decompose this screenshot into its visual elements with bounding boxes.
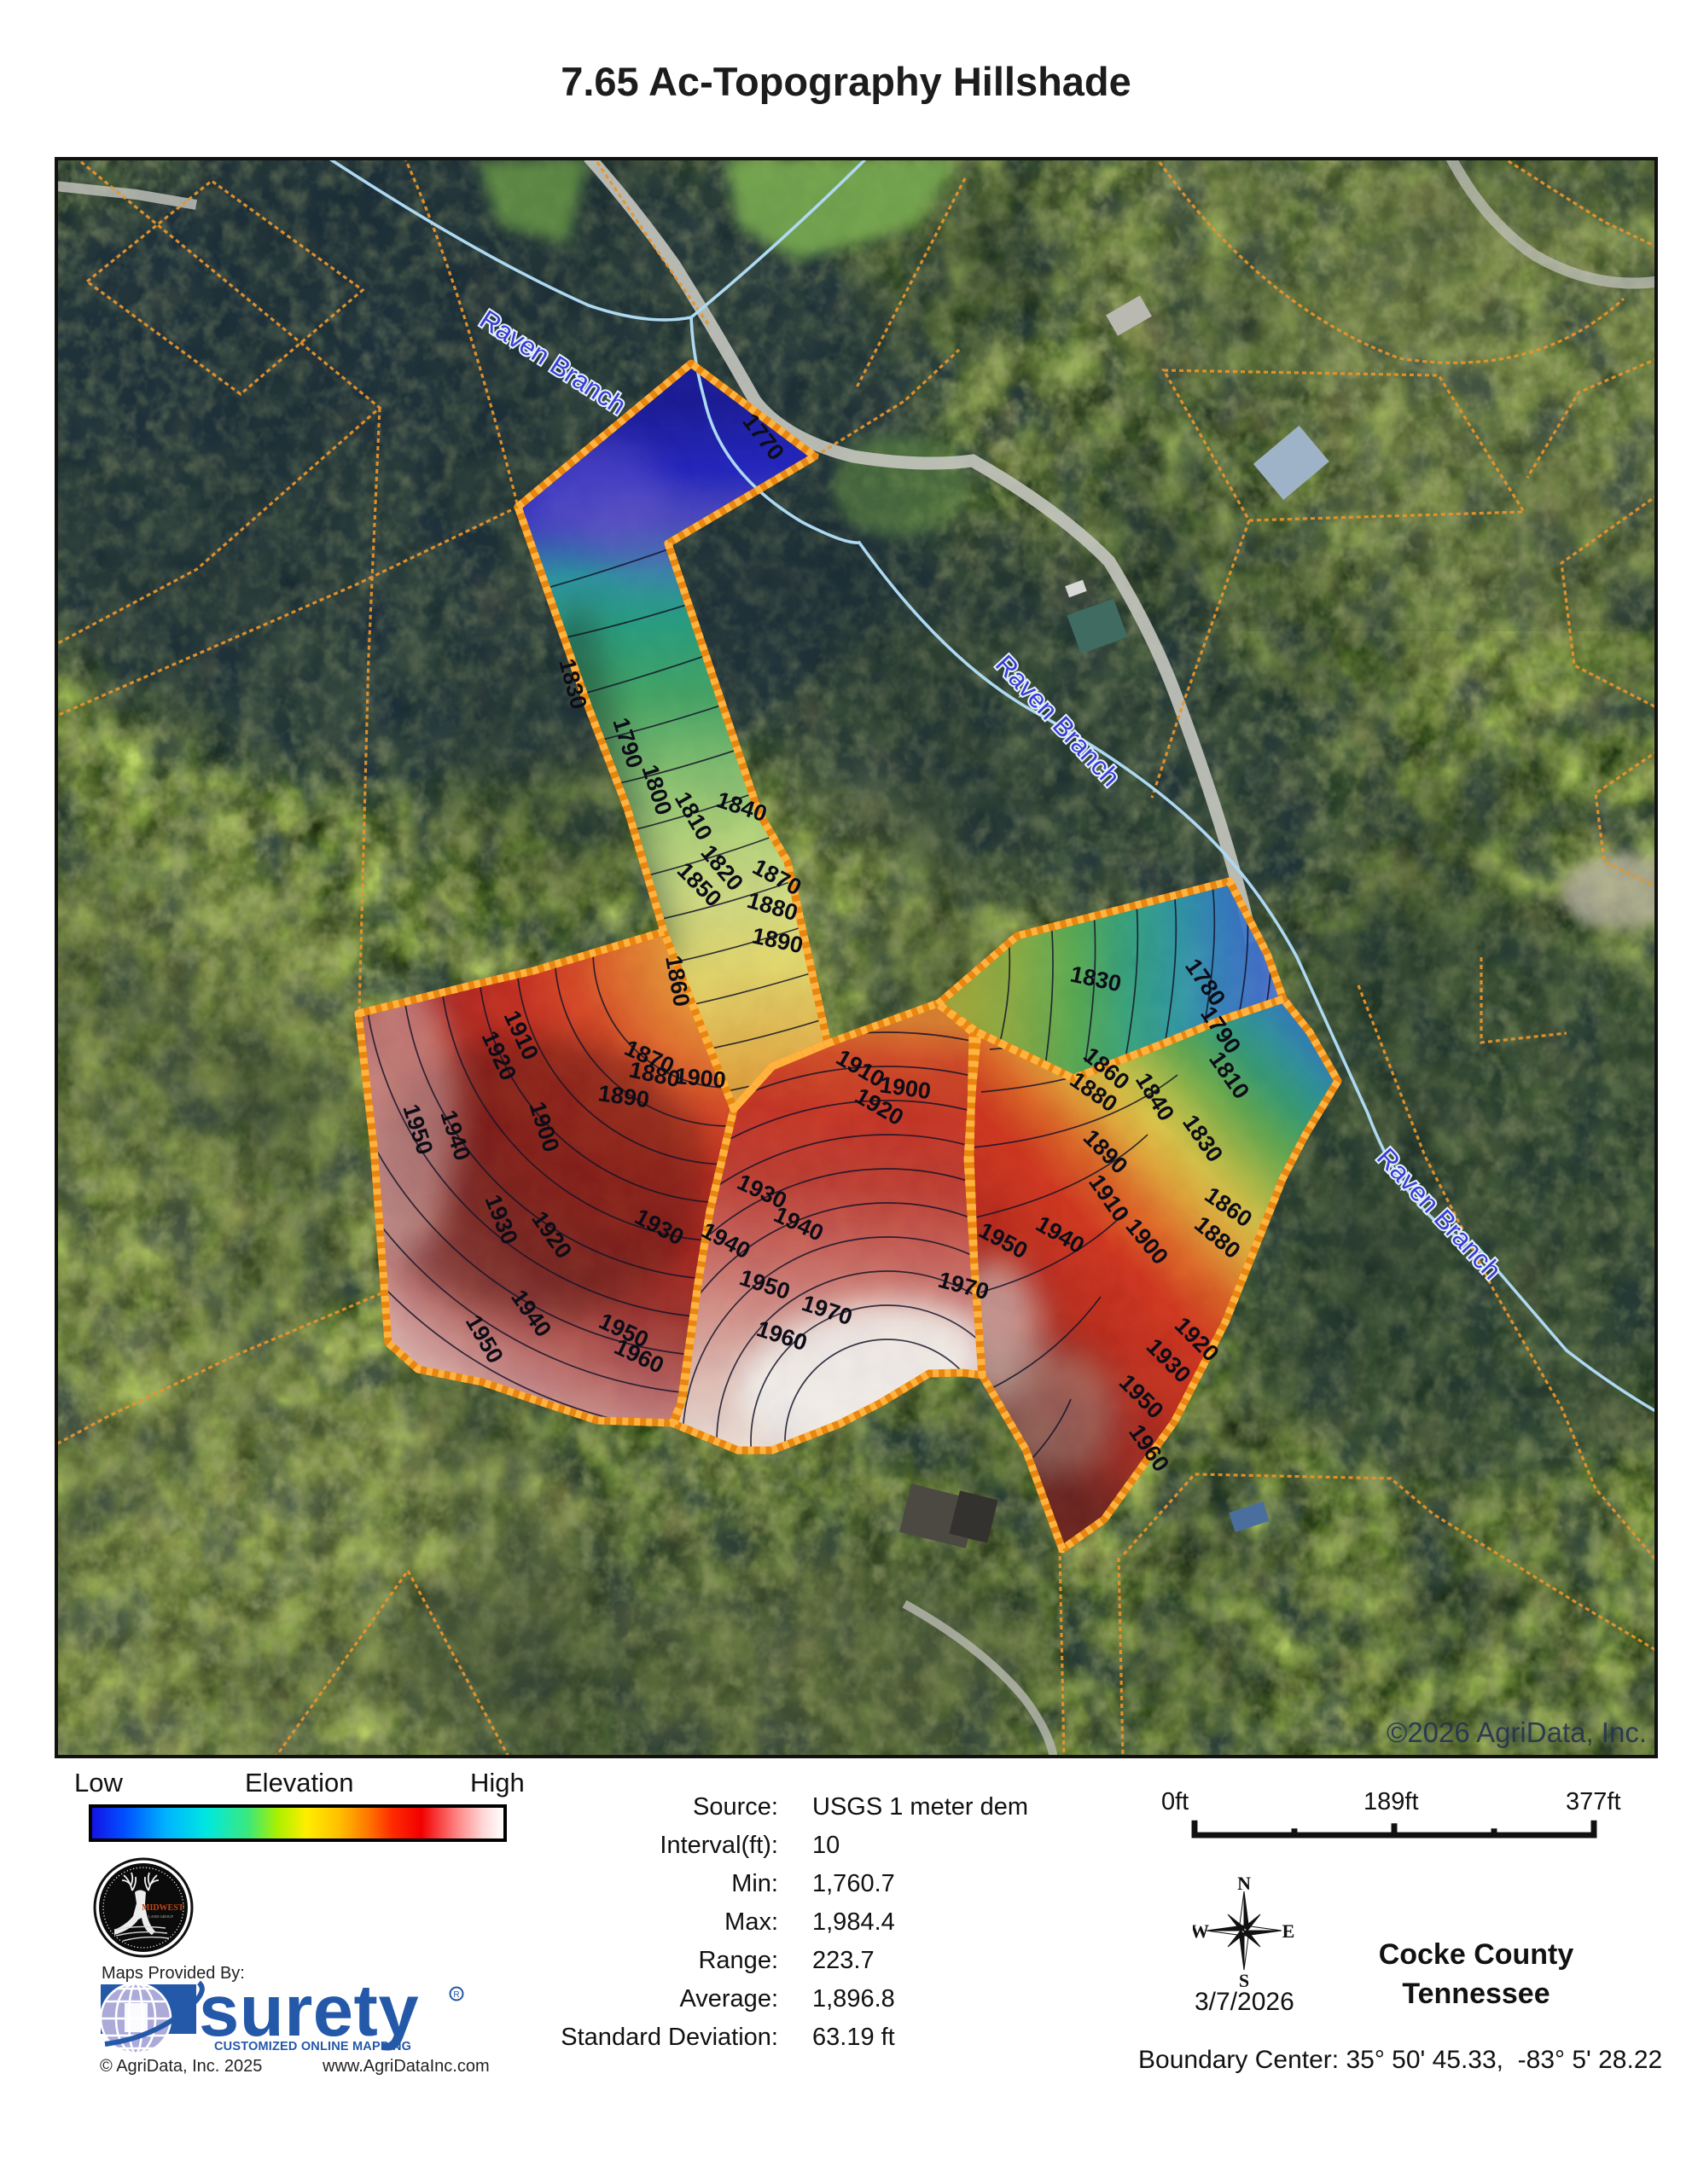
svg-text:1900: 1900 [673,1063,726,1093]
svg-text:N: N [1237,1873,1251,1894]
svg-text:©2026 AgriData, Inc.: ©2026 AgriData, Inc. [1387,1716,1647,1748]
svg-text:LAND GROUP: LAND GROUP [148,1914,173,1919]
svg-text:E: E [1282,1920,1295,1942]
svg-text:MIDWEST: MIDWEST [142,1903,184,1913]
